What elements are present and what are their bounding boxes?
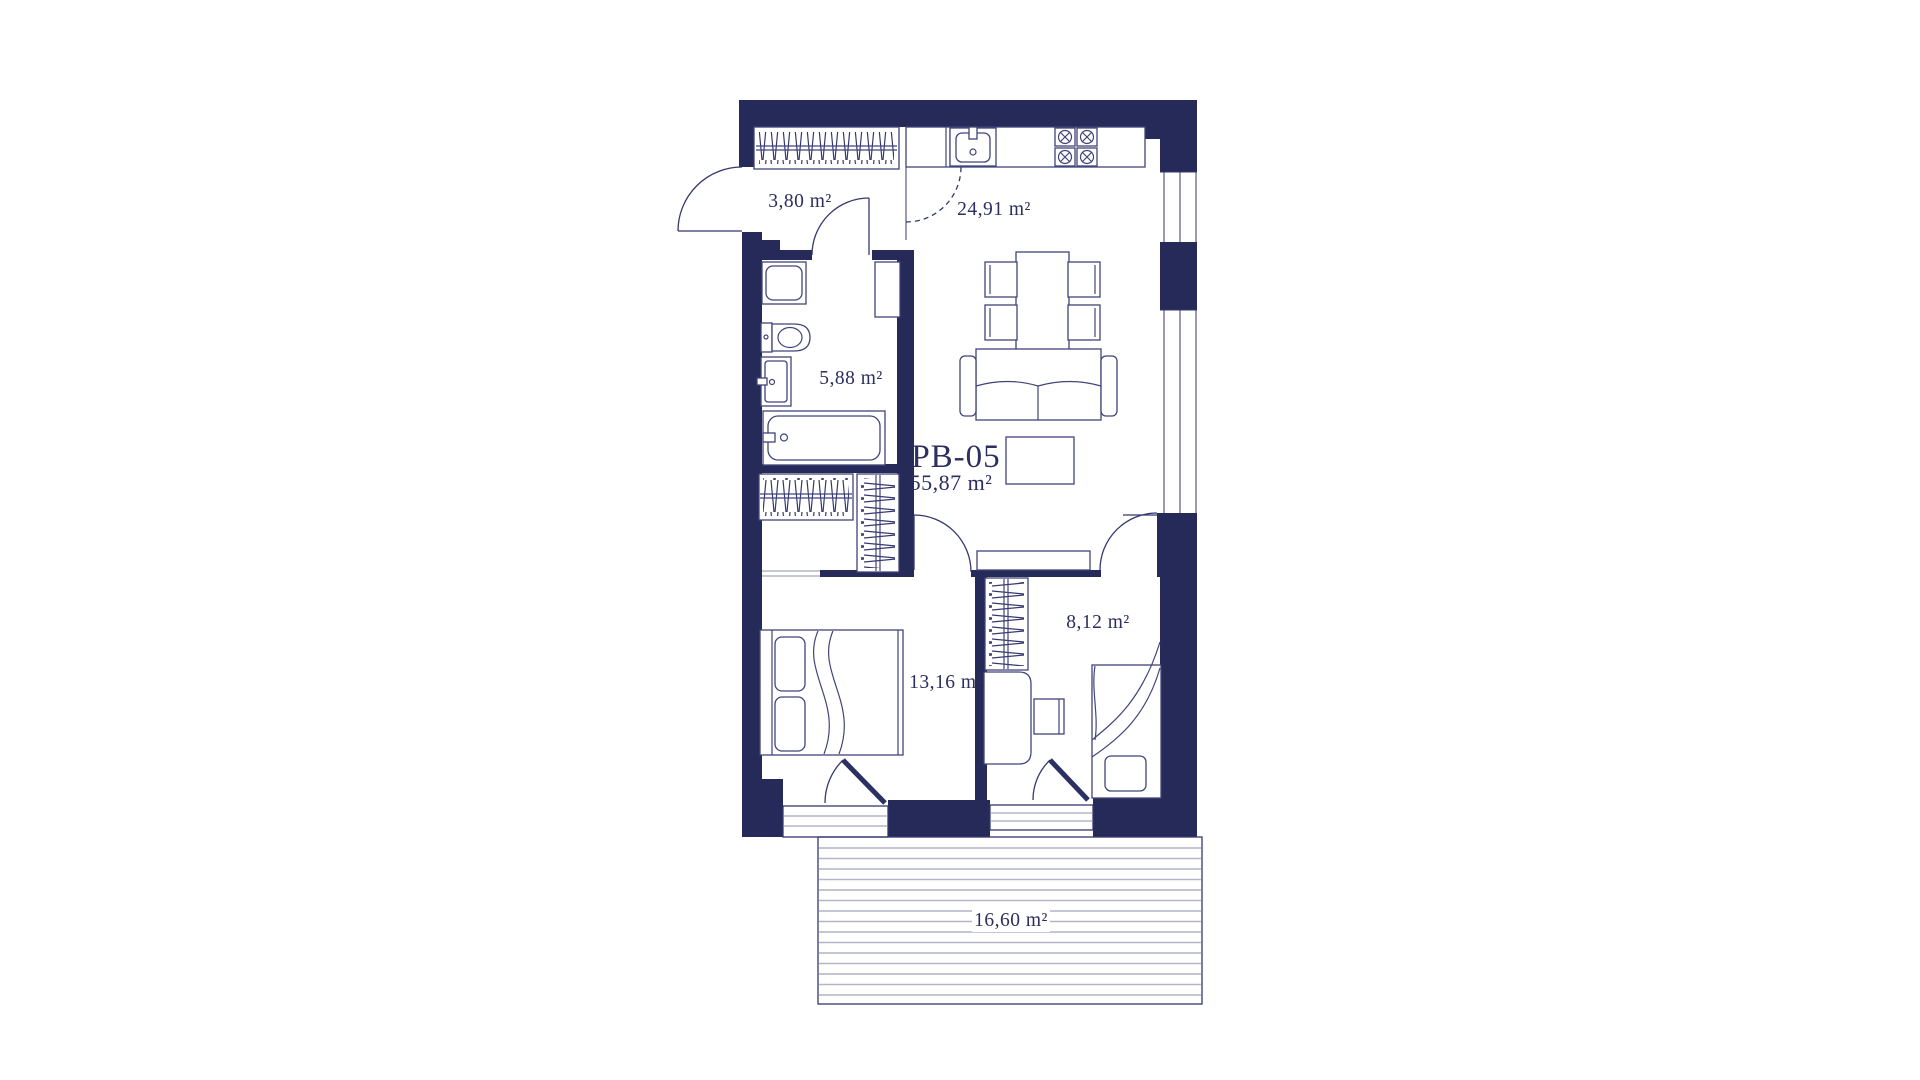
- bedroom-second-door: [1100, 513, 1157, 570]
- single-bed: [1092, 642, 1161, 798]
- entry-door: [678, 167, 742, 231]
- closet-opening: [762, 571, 820, 576]
- washing-machine: [762, 262, 806, 304]
- sideboard: [977, 551, 1090, 570]
- terrace-door-main: [783, 760, 888, 837]
- kitchen-sink: [950, 127, 996, 166]
- desk: [984, 672, 1031, 764]
- kitchen-living-area-label: 24,91 m²: [957, 199, 1031, 220]
- bathtub: [763, 411, 885, 465]
- bathroom-area-label: 5,88 m²: [819, 368, 883, 389]
- floor-plan: 3,80 m² 24,91 m² 5,88 m² PB-05 55,87 m² …: [0, 0, 1920, 1080]
- desk-chair: [1034, 699, 1064, 734]
- bedroom2-wardrobe: [985, 578, 1028, 670]
- closet-rack-vertical: [857, 474, 899, 572]
- terrace-area-label: 16,60 m²: [974, 910, 1048, 931]
- coffee-table: [1006, 437, 1074, 484]
- unit-total-area-label: 55,87 m²: [910, 470, 993, 495]
- terrace-door-second: [990, 760, 1093, 830]
- window-upper: [1160, 172, 1197, 242]
- window-lower: [1160, 310, 1197, 513]
- hallway-area-label: 3,80 m²: [768, 191, 832, 212]
- sofa: [960, 349, 1117, 420]
- bath-cabinet: [875, 262, 900, 317]
- kitchen-counter: [906, 127, 1145, 167]
- bedroom-main-area-label: 13,16 m²: [909, 672, 983, 693]
- bedroom-second-area-label: 8,12 m²: [1066, 612, 1130, 633]
- toilet: [761, 323, 810, 352]
- bedroom-main-door: [914, 515, 971, 572]
- floor-plan-page: 3,80 m² 24,91 m² 5,88 m² PB-05 55,87 m² …: [0, 0, 1920, 1080]
- closet-rack-horizontal: [759, 474, 853, 520]
- hall-wardrobe: [754, 127, 899, 169]
- dining-table: [1016, 252, 1069, 351]
- double-bed: [760, 630, 903, 755]
- bath-sink: [757, 357, 791, 406]
